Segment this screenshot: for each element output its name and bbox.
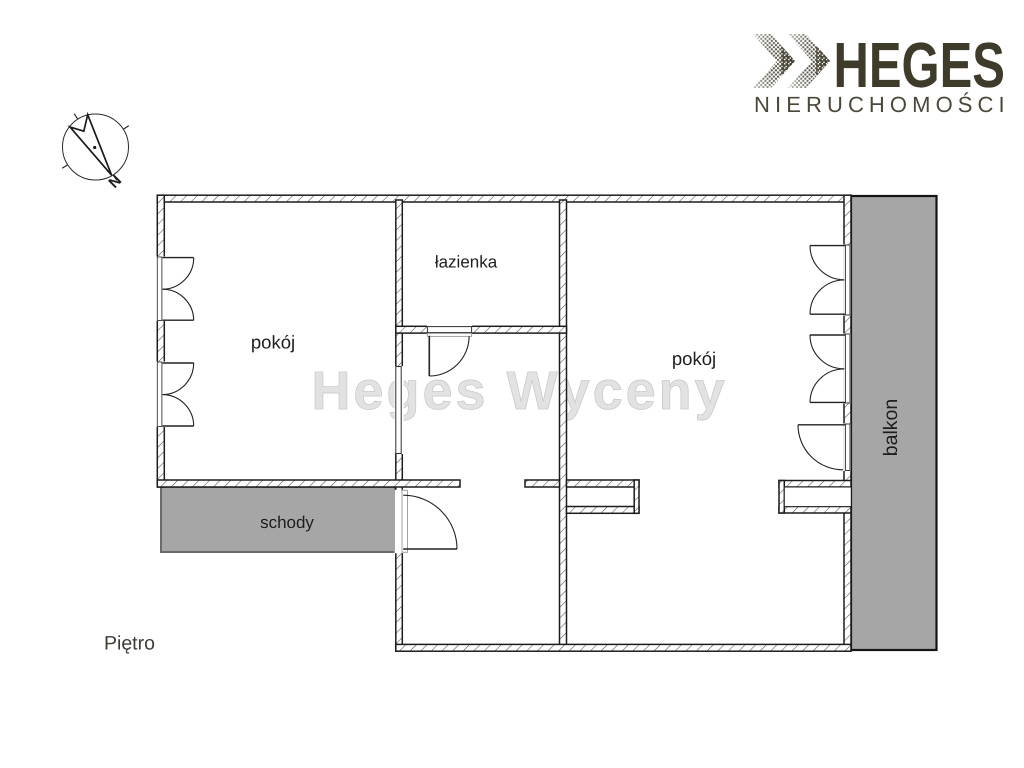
svg-text:łazienka: łazienka bbox=[435, 253, 498, 272]
svg-text:schody: schody bbox=[260, 513, 314, 532]
svg-text:Heges Wyceny: Heges Wyceny bbox=[312, 361, 728, 421]
svg-text:Piętro: Piętro bbox=[104, 633, 155, 655]
svg-text:balkon: balkon bbox=[880, 399, 902, 456]
svg-text:HEGES: HEGES bbox=[834, 29, 1005, 101]
svg-text:pokój: pokój bbox=[251, 332, 295, 353]
svg-text:pokój: pokój bbox=[672, 348, 716, 369]
svg-text:NIERUCHOMOŚCI: NIERUCHOMOŚCI bbox=[754, 92, 1010, 117]
